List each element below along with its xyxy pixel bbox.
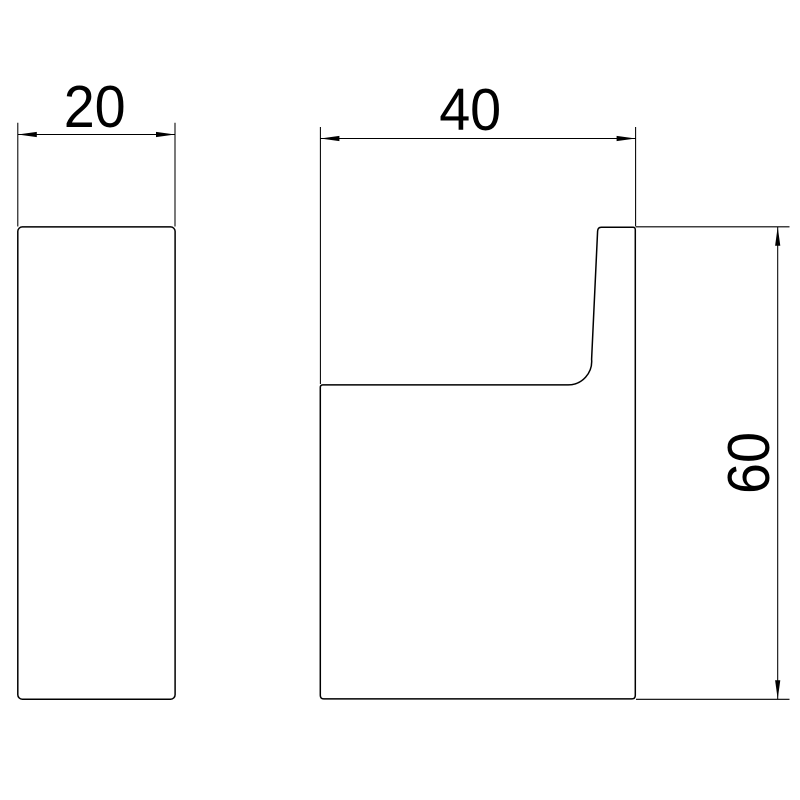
svg-text:60: 60 bbox=[715, 432, 782, 494]
svg-text:40: 40 bbox=[439, 76, 501, 143]
svg-text:20: 20 bbox=[64, 73, 126, 140]
